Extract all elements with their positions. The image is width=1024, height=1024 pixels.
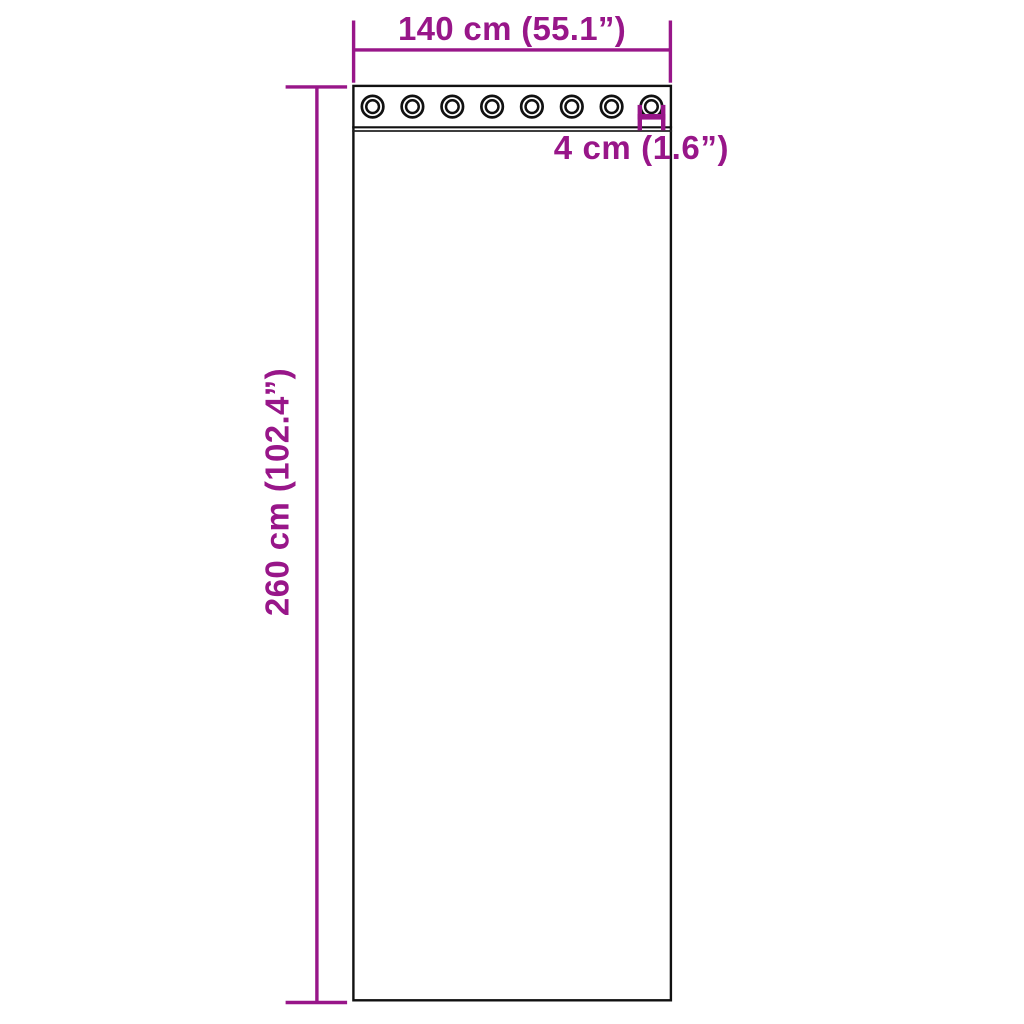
svg-text:260 cm (102.4”): 260 cm (102.4”) xyxy=(259,368,296,616)
svg-text:140 cm (55.1”): 140 cm (55.1”) xyxy=(398,10,626,47)
svg-text:4 cm (1.6”): 4 cm (1.6”) xyxy=(554,129,729,166)
